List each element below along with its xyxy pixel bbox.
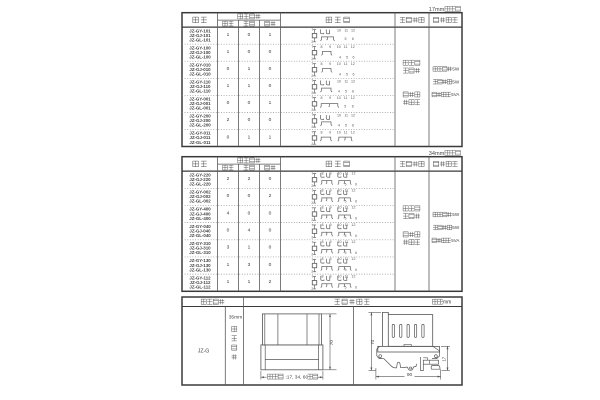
svg-text:JZ-GL-010: JZ-GL-010 (189, 72, 211, 77)
svg-text:7: 7 (311, 206, 313, 210)
svg-text:JZ-GL-400: JZ-GL-400 (189, 216, 211, 221)
svg-text:6: 6 (355, 199, 357, 203)
svg-text:0: 0 (269, 245, 272, 251)
svg-text:5: 5 (345, 268, 347, 272)
svg-text:0: 0 (269, 83, 272, 89)
svg-text:8: 8 (322, 171, 324, 175)
svg-text:8: 8 (322, 206, 324, 210)
svg-text:9: 9 (329, 62, 331, 66)
svg-text:1: 1 (248, 66, 251, 72)
svg-text:1: 1 (227, 279, 230, 285)
svg-text:2: 2 (311, 201, 313, 205)
svg-text:0: 0 (269, 210, 272, 216)
svg-text:6: 6 (352, 123, 354, 127)
svg-text:0: 0 (269, 262, 272, 268)
svg-text:1: 1 (269, 134, 272, 140)
svg-text:2: 2 (311, 108, 313, 112)
svg-text:5: 5 (346, 73, 348, 77)
svg-text:10: 10 (337, 45, 341, 49)
svg-text::17, 34, 60: :17, 34, 60 (285, 374, 308, 380)
svg-text:1: 1 (227, 49, 230, 55)
svg-text:8: 8 (321, 96, 323, 100)
svg-text:8: 8 (322, 257, 324, 261)
svg-text:10: 10 (337, 80, 341, 84)
svg-text:7: 7 (311, 113, 313, 117)
svg-text:5: 5 (345, 199, 347, 203)
svg-text:8: 8 (321, 62, 323, 66)
svg-text:0: 0 (269, 49, 272, 55)
svg-text:0: 0 (269, 66, 272, 72)
svg-text:10: 10 (337, 62, 341, 66)
svg-text:JZ-GL-130: JZ-GL-130 (189, 267, 211, 272)
svg-text:JZ-GL-001: JZ-GL-001 (189, 106, 211, 111)
svg-text:7: 7 (311, 45, 313, 49)
svg-text:5: 5 (345, 123, 347, 127)
svg-text:2: 2 (269, 193, 272, 199)
svg-text:12: 12 (352, 274, 356, 278)
svg-text:5VA: 5VA (451, 238, 459, 243)
svg-text:0: 0 (248, 32, 251, 38)
svg-text:12: 12 (351, 28, 355, 32)
svg-text:1: 1 (248, 279, 251, 285)
svg-text:1: 1 (248, 134, 251, 140)
svg-text:12: 12 (352, 223, 356, 227)
svg-text:6: 6 (352, 89, 354, 93)
svg-text:5: 5 (344, 104, 346, 108)
svg-text:8: 8 (321, 130, 323, 134)
svg-text:5: 5 (345, 234, 347, 238)
svg-text:7: 7 (311, 96, 313, 100)
svg-text:1: 1 (269, 100, 272, 106)
svg-text:12: 12 (351, 62, 355, 66)
svg-text:6: 6 (355, 285, 357, 289)
svg-text:5: 5 (345, 89, 347, 93)
svg-text:2: 2 (248, 176, 251, 182)
svg-text:8: 8 (321, 45, 323, 49)
svg-text:0: 0 (269, 117, 272, 123)
svg-text:JZ-GL-200: JZ-GL-200 (189, 123, 211, 128)
svg-text:12: 12 (351, 45, 355, 49)
svg-text:12: 12 (351, 80, 355, 84)
svg-text:2: 2 (269, 279, 272, 285)
svg-text:0: 0 (227, 134, 230, 140)
svg-text:7: 7 (311, 224, 313, 228)
svg-text:1: 1 (248, 83, 251, 89)
svg-text:JZ-GL-011: JZ-GL-011 (189, 140, 211, 145)
svg-text:5: 5 (345, 217, 347, 221)
svg-text:7: 7 (311, 275, 313, 279)
svg-text:7: 7 (311, 79, 313, 83)
svg-text:2: 2 (311, 287, 313, 291)
svg-text:11: 11 (344, 45, 348, 49)
svg-text:2: 2 (227, 176, 230, 182)
svg-text:2: 2 (311, 74, 313, 78)
svg-text:7: 7 (311, 172, 313, 176)
svg-text:JZ-GL-112: JZ-GL-112 (189, 285, 211, 290)
svg-text:12: 12 (352, 240, 356, 244)
svg-text:7: 7 (311, 28, 313, 32)
svg-text:5VA: 5VA (451, 92, 459, 97)
svg-text:5W: 5W (452, 79, 460, 84)
svg-text:2: 2 (311, 253, 313, 257)
svg-text:12: 12 (351, 114, 355, 118)
svg-text:11: 11 (344, 62, 348, 66)
svg-text:1: 1 (248, 245, 251, 251)
svg-text:5W: 5W (452, 67, 460, 72)
svg-text:2: 2 (227, 117, 230, 123)
svg-text:6: 6 (355, 234, 357, 238)
svg-text:12: 12 (352, 206, 356, 210)
svg-text:4: 4 (338, 89, 340, 93)
svg-text:JZ-GL-110: JZ-GL-110 (189, 89, 211, 94)
svg-text:8: 8 (322, 189, 324, 193)
svg-text:7: 7 (311, 241, 313, 245)
svg-text:0: 0 (269, 228, 272, 234)
svg-text:JZ-GL-310: JZ-GL-310 (189, 250, 211, 255)
svg-text:2: 2 (311, 57, 313, 61)
svg-text:4: 4 (339, 73, 341, 77)
svg-text:11: 11 (344, 96, 348, 100)
svg-text:2: 2 (311, 184, 313, 188)
svg-text:12: 12 (352, 189, 356, 193)
svg-text:8: 8 (322, 274, 324, 278)
svg-text:0: 0 (248, 193, 251, 199)
svg-text:5: 5 (345, 182, 347, 186)
svg-text:11: 11 (344, 130, 348, 134)
svg-text:4: 4 (248, 228, 251, 234)
svg-text:9: 9 (329, 96, 331, 100)
svg-text:0: 0 (227, 100, 230, 106)
svg-text:90: 90 (407, 372, 413, 378)
svg-text:5W: 5W (452, 225, 460, 230)
svg-text:0: 0 (248, 100, 251, 106)
svg-text:4: 4 (339, 56, 341, 60)
svg-text:JZ-GL-100: JZ-GL-100 (189, 54, 211, 59)
svg-text:8: 8 (322, 240, 324, 244)
svg-text:JZ-GL-220: JZ-GL-220 (189, 181, 211, 186)
svg-text:9: 9 (329, 45, 331, 49)
svg-text:9: 9 (329, 130, 331, 134)
svg-text:3: 3 (248, 262, 251, 268)
svg-text:3: 3 (227, 245, 230, 251)
svg-text:6: 6 (355, 268, 357, 272)
svg-text:6: 6 (355, 251, 357, 255)
svg-text:7: 7 (311, 62, 313, 66)
svg-text:6: 6 (352, 104, 354, 108)
svg-text:70: 70 (370, 339, 375, 345)
svg-text:12: 12 (352, 171, 356, 175)
svg-text:8: 8 (322, 223, 324, 227)
svg-text:0: 0 (227, 193, 230, 199)
svg-text:2: 2 (311, 235, 313, 239)
svg-text:2: 2 (311, 40, 313, 44)
svg-text:JZ-GL-101: JZ-GL-101 (189, 37, 211, 42)
svg-text:4: 4 (227, 210, 230, 216)
svg-text:JZ-G: JZ-G (198, 348, 210, 354)
svg-text:2: 2 (311, 270, 313, 274)
svg-text:2: 2 (311, 218, 313, 222)
svg-text:6: 6 (353, 56, 355, 60)
svg-text:5W: 5W (452, 212, 460, 217)
svg-text:10: 10 (337, 130, 341, 134)
svg-text:11: 11 (344, 114, 348, 118)
svg-text:11: 11 (344, 80, 348, 84)
svg-text:17: 17 (441, 356, 446, 361)
svg-text:7: 7 (311, 189, 313, 193)
svg-text:1: 1 (227, 262, 230, 268)
svg-text:35mm: 35mm (229, 314, 243, 320)
svg-text:2: 2 (311, 142, 313, 146)
svg-text:JZ-GL-002: JZ-GL-002 (189, 199, 211, 204)
svg-text:12: 12 (352, 257, 356, 261)
svg-text:6: 6 (355, 217, 357, 221)
svg-text:5: 5 (345, 37, 347, 41)
svg-text:0: 0 (248, 210, 251, 216)
svg-text:1: 1 (227, 83, 230, 89)
svg-text:11: 11 (344, 28, 348, 32)
svg-text:6: 6 (355, 182, 357, 186)
svg-text:12: 12 (351, 130, 355, 134)
svg-text::mm: :mm (442, 300, 452, 306)
svg-text:7: 7 (311, 258, 313, 262)
svg-text:JZ-GL-040: JZ-GL-040 (189, 233, 211, 238)
svg-text:4: 4 (338, 123, 340, 127)
svg-text:10: 10 (337, 96, 341, 100)
svg-text:0: 0 (248, 49, 251, 55)
svg-text:5: 5 (345, 251, 347, 255)
svg-text:1: 1 (269, 32, 272, 38)
svg-text:12: 12 (351, 96, 355, 100)
svg-text:2: 2 (311, 125, 313, 129)
svg-text:6: 6 (353, 73, 355, 77)
svg-text:70: 70 (329, 340, 335, 346)
svg-text:10: 10 (337, 28, 341, 32)
svg-text:0: 0 (269, 176, 272, 182)
svg-text:5: 5 (345, 285, 347, 289)
svg-text:1: 1 (227, 32, 230, 38)
svg-text:0: 0 (248, 117, 251, 123)
svg-text:0: 0 (227, 228, 230, 234)
svg-text:10: 10 (337, 114, 341, 118)
svg-text:2: 2 (311, 91, 313, 95)
svg-text:6: 6 (352, 37, 354, 41)
svg-text:7: 7 (311, 130, 313, 134)
svg-text:5: 5 (346, 56, 348, 60)
svg-text:0: 0 (227, 66, 230, 72)
